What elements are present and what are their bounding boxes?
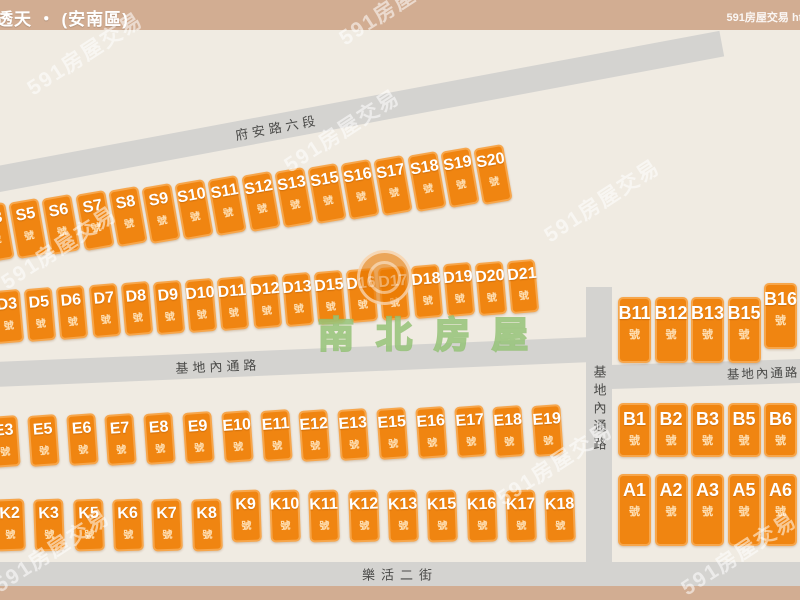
lot-number: E17 <box>455 412 485 431</box>
lot-E13[interactable]: E13號 <box>337 408 369 461</box>
lot-number: S17 <box>376 162 407 183</box>
lot-number: B15 <box>727 304 760 323</box>
lot-E5[interactable]: E5號 <box>27 414 59 467</box>
lot-suffix: 號 <box>123 214 135 231</box>
lot-E16[interactable]: E16號 <box>415 406 447 459</box>
lot-suffix: 號 <box>666 432 677 448</box>
lot-number: B6 <box>769 410 792 429</box>
lot-E15[interactable]: E15號 <box>376 407 408 460</box>
lot-D17[interactable]: D17號 <box>378 266 411 321</box>
site-watermark: 591房屋交易 <box>538 151 666 249</box>
lot-E8[interactable]: E8號 <box>143 412 175 465</box>
lot-suffix: 號 <box>504 432 515 448</box>
lot-suffix: 號 <box>426 434 437 450</box>
lot-A1[interactable]: A1號 <box>618 474 651 546</box>
lot-E6[interactable]: E6號 <box>66 413 98 466</box>
lot-suffix: 號 <box>666 503 677 519</box>
lot-suffix: 號 <box>775 432 786 448</box>
lot-suffix: 號 <box>164 307 175 323</box>
lot-D7[interactable]: D7號 <box>88 283 121 338</box>
lot-A3[interactable]: A3號 <box>691 474 724 546</box>
lot-B15[interactable]: B15號 <box>728 297 761 363</box>
lot-number: A5 <box>732 481 755 500</box>
lot-D5[interactable]: D5號 <box>24 287 57 342</box>
lot-number: S8 <box>114 194 136 214</box>
lot-suffix: 號 <box>702 432 713 448</box>
lot-suffix: 號 <box>232 438 243 454</box>
lot-K18[interactable]: K18號 <box>544 489 576 542</box>
street-label-bottom: 樂活二街 <box>362 565 438 584</box>
lot-E12[interactable]: E12號 <box>299 409 331 462</box>
lot-D19[interactable]: D19號 <box>443 262 476 317</box>
lot-number: D12 <box>249 281 280 300</box>
lot-number: S3 <box>0 210 4 230</box>
lot-number: D18 <box>410 271 441 290</box>
lot-D8[interactable]: D8號 <box>121 281 154 336</box>
lot-suffix: 號 <box>739 503 750 519</box>
lot-D20[interactable]: D20號 <box>475 260 508 315</box>
lot-number: B13 <box>691 304 724 323</box>
lot-number: S12 <box>243 178 274 199</box>
lot-suffix: 號 <box>89 218 101 235</box>
lot-suffix: 號 <box>162 526 173 541</box>
lot-K6[interactable]: K6號 <box>112 498 144 551</box>
lot-suffix: 號 <box>629 326 640 342</box>
lot-number: D13 <box>281 279 312 298</box>
lot-suffix: 號 <box>196 305 207 321</box>
lot-K3[interactable]: K3號 <box>33 498 65 551</box>
lot-suffix: 號 <box>289 195 301 212</box>
lot-D10[interactable]: D10號 <box>185 277 218 332</box>
lot-S17[interactable]: S17號 <box>374 155 413 216</box>
lot-suffix: 號 <box>241 517 252 532</box>
lot-B2[interactable]: B2號 <box>655 403 688 457</box>
lot-number: E3 <box>0 422 14 440</box>
lot-suffix: 號 <box>518 286 529 302</box>
lot-number: D11 <box>218 283 248 302</box>
lot-number: S6 <box>48 202 70 222</box>
lot-number: B5 <box>732 410 755 429</box>
lot-number: D10 <box>185 284 216 303</box>
lot-E7[interactable]: E7號 <box>105 413 137 466</box>
lot-D12[interactable]: D12號 <box>249 274 282 329</box>
lot-number: A2 <box>659 481 682 500</box>
lot-number: E19 <box>532 411 562 430</box>
lot-suffix: 號 <box>189 207 201 224</box>
lot-B12[interactable]: B12號 <box>655 297 688 363</box>
lot-number: E10 <box>222 417 252 436</box>
lot-number: D21 <box>507 265 538 284</box>
lot-S18[interactable]: S18號 <box>407 151 446 212</box>
lot-suffix: 號 <box>455 175 467 192</box>
lot-K9[interactable]: K9號 <box>230 489 262 542</box>
lot-suffix: 號 <box>280 517 291 532</box>
lot-suffix: 號 <box>488 171 500 188</box>
lot-S7[interactable]: S7號 <box>75 190 114 251</box>
lot-number: K18 <box>545 496 575 514</box>
lot-suffix: 號 <box>310 436 321 452</box>
lot-D18[interactable]: D18號 <box>410 264 443 319</box>
lot-D6[interactable]: D6號 <box>56 285 89 340</box>
lot-suffix: 號 <box>775 312 786 328</box>
lot-suffix: 號 <box>389 294 400 310</box>
lot-number: S11 <box>210 182 240 203</box>
lot-suffix: 號 <box>84 526 95 541</box>
lot-E18[interactable]: E18號 <box>493 405 525 458</box>
lot-K7[interactable]: K7號 <box>151 498 183 551</box>
lot-K8[interactable]: K8號 <box>191 498 223 551</box>
lot-suffix: 號 <box>0 442 11 458</box>
lot-number: E15 <box>377 414 407 433</box>
lot-number: S5 <box>15 206 37 226</box>
lot-suffix: 號 <box>516 517 527 532</box>
lot-D21[interactable]: D21號 <box>507 258 540 313</box>
lot-D13[interactable]: D13號 <box>282 272 315 327</box>
lot-number: E6 <box>71 421 92 439</box>
lot-suffix: 號 <box>388 183 400 200</box>
lot-B5[interactable]: B5號 <box>728 403 761 457</box>
lot-suffix: 號 <box>44 526 55 541</box>
lot-suffix: 號 <box>398 517 409 532</box>
lot-suffix: 號 <box>222 203 234 220</box>
lot-number: E12 <box>299 416 329 435</box>
lot-number: A6 <box>769 481 792 500</box>
lot-number: D6 <box>60 292 82 311</box>
site-plan-map: 府安路六段 基地內通路 基地內通路 基地內通路 樂活二街 S3號S5號S6號S7… <box>0 0 800 600</box>
lot-B3[interactable]: B3號 <box>691 403 724 457</box>
lot-suffix: 號 <box>325 297 336 313</box>
header-bar: 透天 ・ (安南區) 591房屋交易 htt <box>0 0 800 30</box>
lot-suffix: 號 <box>77 441 88 457</box>
lot-suffix: 號 <box>194 438 205 454</box>
lot-suffix: 號 <box>666 326 677 342</box>
lot-number: D17 <box>378 273 409 292</box>
lot-suffix: 號 <box>355 187 367 204</box>
lot-K5[interactable]: K5號 <box>73 498 105 551</box>
lot-number: S9 <box>148 190 170 210</box>
lot-S20[interactable]: S20號 <box>473 143 512 204</box>
lot-suffix: 號 <box>359 517 370 532</box>
road-lehuo-2nd-st: 樂活二街 <box>0 562 800 586</box>
lot-suffix: 號 <box>38 442 49 458</box>
lot-number: K9 <box>235 497 256 515</box>
lot-suffix: 號 <box>100 311 111 327</box>
lot-suffix: 號 <box>56 222 68 239</box>
lot-suffix: 號 <box>702 503 713 519</box>
lot-suffix: 號 <box>35 314 46 330</box>
lot-D16[interactable]: D16號 <box>346 268 379 323</box>
lot-number: D20 <box>475 267 506 286</box>
lot-number: E16 <box>416 413 446 432</box>
lot-K17[interactable]: K17號 <box>505 489 537 542</box>
lot-suffix: 號 <box>702 326 713 342</box>
lot-D15[interactable]: D15號 <box>314 270 347 325</box>
road-internal-right: 基地內通路 <box>610 359 800 389</box>
lot-suffix: 號 <box>155 439 166 455</box>
lot-number: E5 <box>32 422 53 440</box>
lot-suffix: 號 <box>775 503 786 519</box>
lot-number: K8 <box>196 506 217 524</box>
lot-suffix: 號 <box>349 435 360 451</box>
lot-number: K12 <box>348 496 378 514</box>
lot-number: D9 <box>157 287 179 306</box>
lot-suffix: 號 <box>23 226 35 243</box>
lot-B6[interactable]: B6號 <box>764 403 797 457</box>
lot-number: D8 <box>125 289 147 308</box>
lot-S12[interactable]: S12號 <box>241 171 280 232</box>
lot-S6[interactable]: S6號 <box>42 194 81 255</box>
lot-B13[interactable]: B13號 <box>691 297 724 363</box>
lot-K15[interactable]: K15號 <box>426 489 458 542</box>
lot-suffix: 號 <box>543 431 554 447</box>
lot-suffix: 號 <box>739 432 750 448</box>
lot-suffix: 號 <box>261 301 272 317</box>
lot-E19[interactable]: E19號 <box>531 404 563 457</box>
lot-suffix: 號 <box>322 191 334 208</box>
lot-number: K7 <box>156 506 177 524</box>
lot-number: B2 <box>659 410 682 429</box>
lot-number: S7 <box>81 198 103 218</box>
lot-suffix: 號 <box>202 526 213 541</box>
lot-K2[interactable]: K2號 <box>0 498 26 551</box>
lot-number: K10 <box>270 496 300 514</box>
lot-suffix: 號 <box>357 295 368 311</box>
road-internal-mid: 基地內通路 <box>0 337 596 387</box>
lot-suffix: 號 <box>271 437 282 453</box>
street-label-top: 府安路六段 <box>233 110 320 144</box>
lot-B16[interactable]: B16號 <box>764 283 797 349</box>
lot-D3[interactable]: D3號 <box>0 289 24 344</box>
lot-number: S15 <box>309 170 340 191</box>
lot-suffix: 號 <box>228 303 239 319</box>
street-label-vertical: 基地內通路 <box>590 365 609 455</box>
lot-number: S10 <box>176 185 207 206</box>
lot-number: S16 <box>342 166 373 187</box>
lot-suffix: 號 <box>123 526 134 541</box>
lot-number: A1 <box>623 481 646 500</box>
lot-number: D19 <box>442 269 473 288</box>
lot-E17[interactable]: E17號 <box>454 405 486 458</box>
lot-suffix: 號 <box>437 517 448 532</box>
header-site-label: 591房屋交易 htt <box>727 9 800 25</box>
lot-number: D5 <box>28 294 50 313</box>
lot-A6[interactable]: A6號 <box>764 474 797 546</box>
street-label-mid: 基地內通路 <box>175 354 261 377</box>
lot-number: B16 <box>764 290 797 309</box>
road-internal-vertical: 基地內通路 <box>586 287 612 565</box>
lot-number: S19 <box>442 154 473 175</box>
footer-bar <box>0 586 800 600</box>
lot-number: E9 <box>187 418 208 436</box>
lot-A5[interactable]: A5號 <box>728 474 761 546</box>
lot-suffix: 號 <box>477 517 488 532</box>
lot-B1[interactable]: B1號 <box>618 403 651 457</box>
lot-suffix: 號 <box>454 290 465 306</box>
lot-suffix: 號 <box>629 503 640 519</box>
lot-A2[interactable]: A2號 <box>655 474 688 546</box>
lot-K16[interactable]: K16號 <box>466 489 498 542</box>
lot-number: E7 <box>110 420 131 438</box>
lot-suffix: 號 <box>486 288 497 304</box>
lot-number: K3 <box>38 506 59 524</box>
lot-K13[interactable]: K13號 <box>387 489 419 542</box>
lot-S11[interactable]: S11號 <box>208 175 247 236</box>
lot-number: B11 <box>618 304 650 323</box>
street-label-right: 基地內通路 <box>727 362 800 383</box>
page-title: 透天 ・ (安南區) <box>0 5 129 30</box>
lot-suffix: 號 <box>629 432 640 448</box>
lot-suffix: 號 <box>132 309 143 325</box>
lot-number: B3 <box>696 410 719 429</box>
lot-number: B12 <box>654 304 687 323</box>
lot-number: K6 <box>117 506 138 524</box>
lot-B11[interactable]: B11號 <box>618 297 651 363</box>
lot-suffix: 號 <box>67 313 78 329</box>
lot-number: S13 <box>276 174 307 195</box>
lot-number: E8 <box>149 419 170 437</box>
lot-suffix: 號 <box>0 230 2 247</box>
lot-suffix: 號 <box>116 440 127 456</box>
lot-suffix: 號 <box>739 326 750 342</box>
lot-K11[interactable]: K11號 <box>308 489 340 542</box>
lot-D11[interactable]: D11號 <box>217 276 250 331</box>
lot-number: K2 <box>0 506 20 524</box>
lot-number: D7 <box>93 290 115 309</box>
lot-suffix: 號 <box>422 292 433 308</box>
lot-suffix: 號 <box>319 517 330 532</box>
lot-E3[interactable]: E3號 <box>0 415 21 468</box>
lot-number: B1 <box>623 410 646 429</box>
lot-D9[interactable]: D9號 <box>153 279 186 334</box>
lot-number: E11 <box>261 416 290 435</box>
lot-suffix: 號 <box>421 179 433 196</box>
lot-number: K15 <box>427 496 457 514</box>
lot-suffix: 號 <box>465 433 476 449</box>
lot-number: K13 <box>388 496 418 514</box>
lot-number: E18 <box>493 412 523 431</box>
lot-number: S18 <box>409 158 440 179</box>
lot-suffix: 號 <box>156 210 168 227</box>
lot-number: K16 <box>466 496 496 514</box>
lot-suffix: 號 <box>555 517 566 532</box>
lot-suffix: 號 <box>293 299 304 315</box>
lot-suffix: 號 <box>255 199 267 216</box>
lot-number: D16 <box>346 275 377 294</box>
lot-number: K11 <box>310 497 339 515</box>
lot-E9[interactable]: E9號 <box>182 411 214 464</box>
lot-suffix: 號 <box>3 316 14 332</box>
lot-S13[interactable]: S13號 <box>274 167 313 228</box>
lot-number: S20 <box>475 150 506 171</box>
lot-K10[interactable]: K10號 <box>269 489 301 542</box>
lot-number: K5 <box>78 506 99 524</box>
lot-E11[interactable]: E11號 <box>260 409 292 462</box>
lot-suffix: 號 <box>388 434 399 450</box>
lot-E10[interactable]: E10號 <box>221 410 253 463</box>
lot-K12[interactable]: K12號 <box>348 489 380 542</box>
lot-suffix: 號 <box>5 526 16 541</box>
lot-number: K17 <box>506 496 536 514</box>
lot-number: D15 <box>314 277 345 296</box>
lot-number: D3 <box>0 296 18 315</box>
lot-number: A3 <box>696 481 719 500</box>
lot-number: E13 <box>338 415 368 434</box>
